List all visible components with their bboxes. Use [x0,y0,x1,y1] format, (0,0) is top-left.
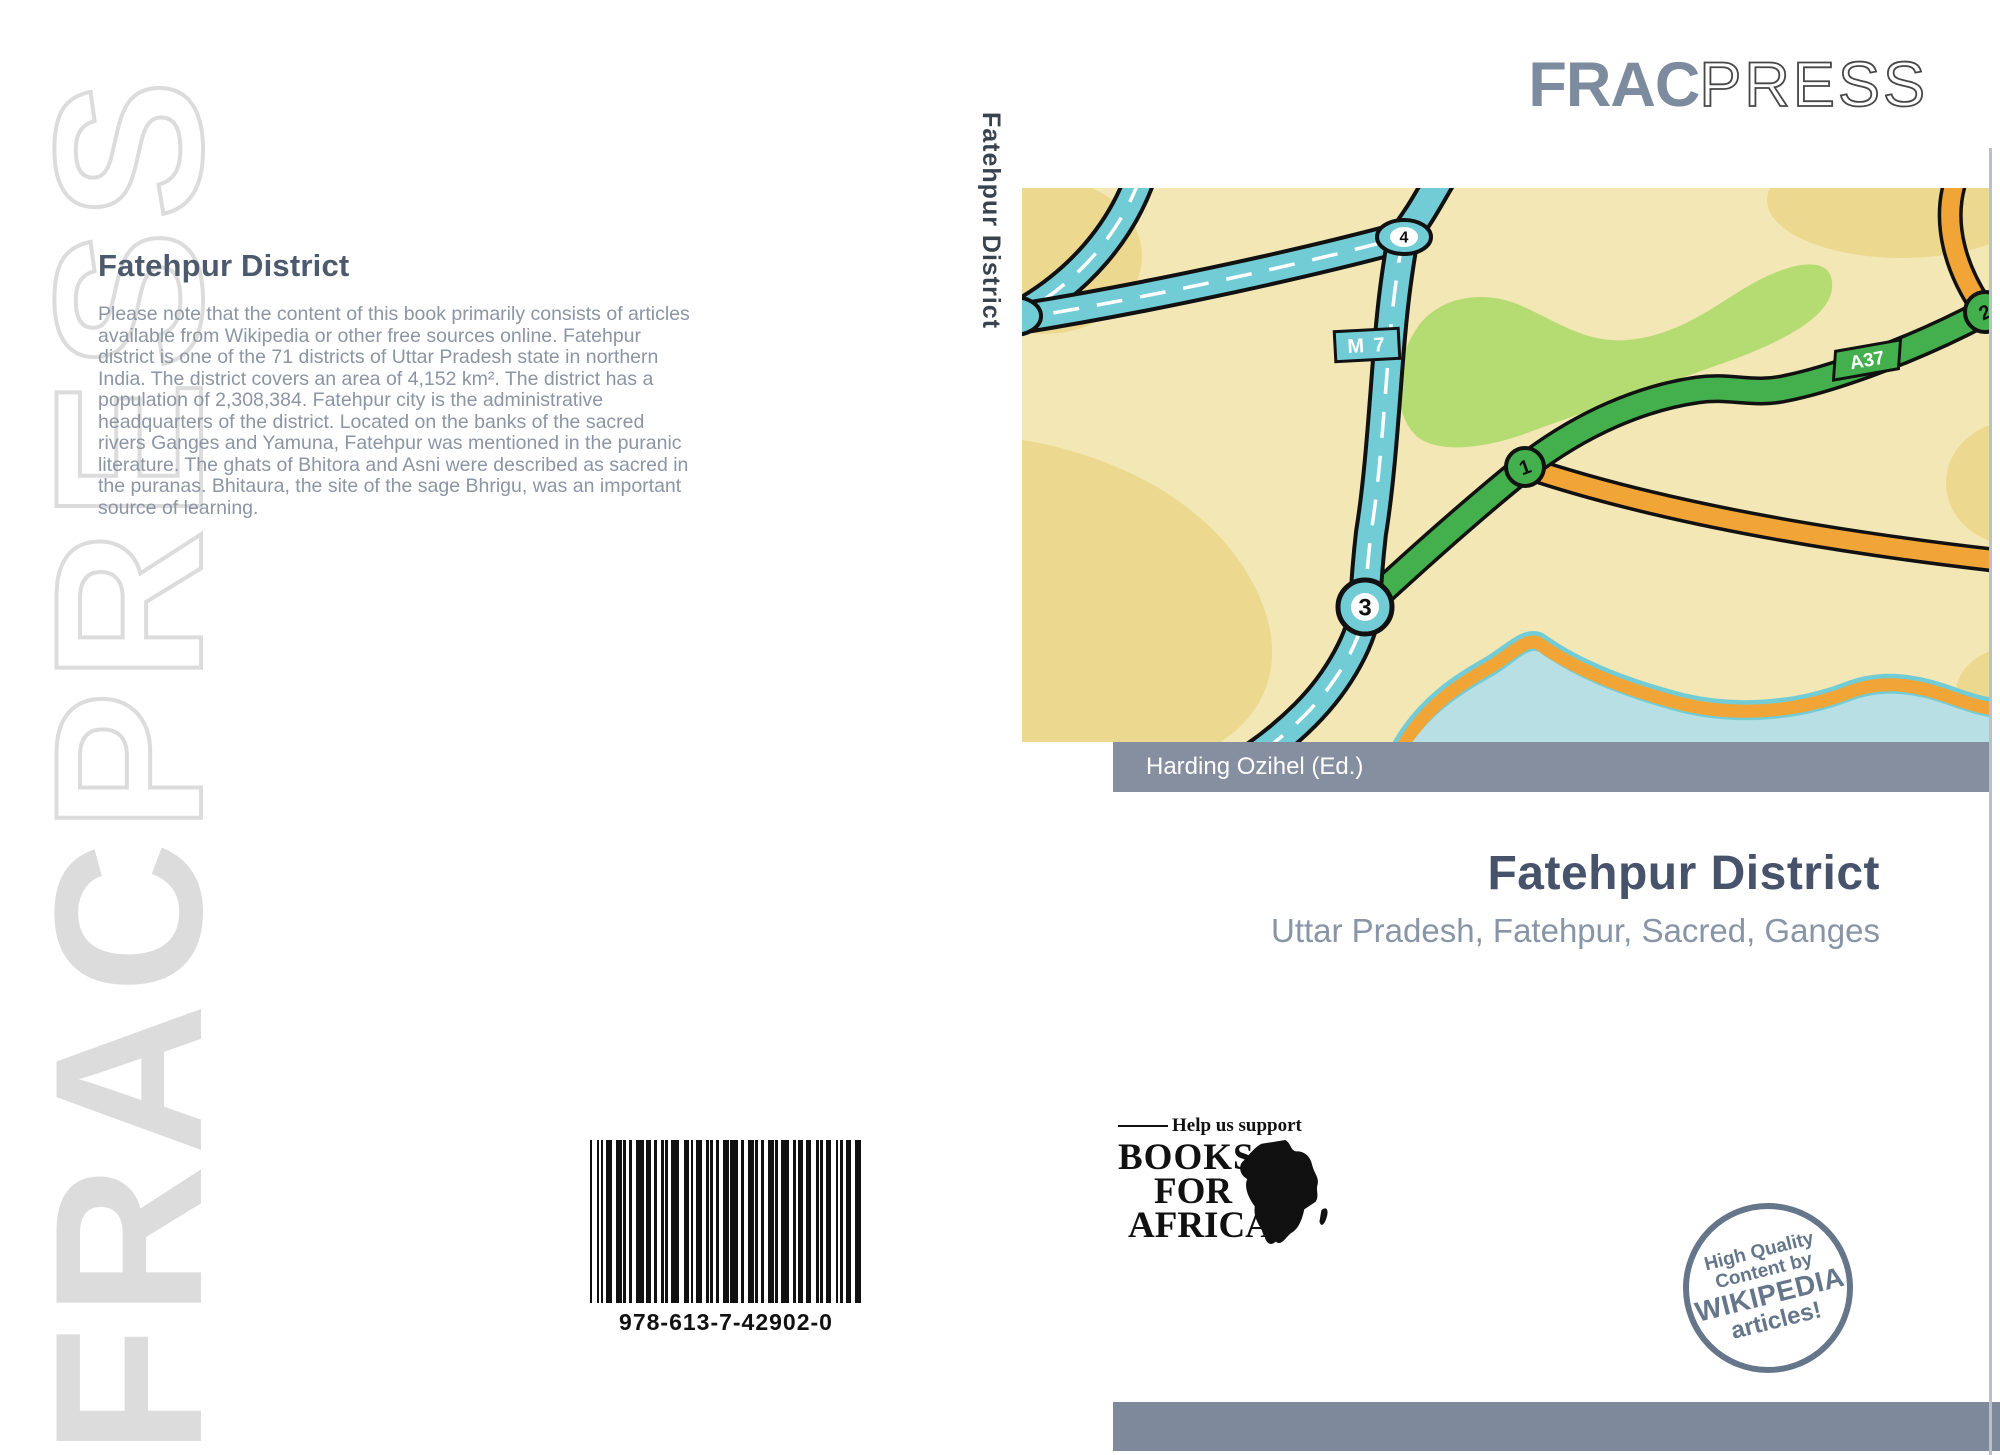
junction-4: 4 [1377,220,1431,254]
books-for-africa-logo: Help us support BOOKS FOR AFRICA [1118,1115,1318,1275]
bfa-word-books: BOOKS [1118,1141,1272,1175]
logo-frac: FRAC [1528,50,1699,120]
barcode-bars [590,1140,862,1303]
m7-label: M 7 [1334,328,1399,361]
bfa-word-africa: AFRICA [1118,1209,1272,1243]
watermark-frac: FRAC [11,832,246,1455]
front-subtitle: Uttar Pradesh, Fatehpur, Sacred, Ganges [1271,912,1880,950]
isbn-number: 978-613-7-42902-0 [590,1309,862,1336]
editor-bar: Harding Ozihel (Ed.) [1113,742,1992,792]
barcode: 978-613-7-42902-0 [590,1140,862,1336]
svg-text:4: 4 [1400,230,1409,247]
bfa-tagline-text: Help us support [1172,1115,1302,1136]
map-svg: M 7 A37 4 1 2 [1022,188,1990,742]
junction-2: 2 [1965,292,1990,332]
book-cover: FRACPRESS Fatehpur District Please note … [0,0,2000,1455]
junction-1: 1 [1506,448,1544,486]
svg-text:3: 3 [1358,595,1371,622]
front-title: Fatehpur District [1487,846,1880,901]
bottom-bar [1113,1402,2000,1451]
editor-name: Harding Ozihel (Ed.) [1146,753,1363,780]
publisher-watermark: FRACPRESS [6,0,261,1455]
bfa-tagline: Help us support [1118,1115,1318,1137]
back-cover-description: Please note that the content of this boo… [98,304,690,519]
svg-text:M 7: M 7 [1347,334,1387,358]
bfa-word-for: FOR [1118,1175,1272,1209]
junction-3: 3 [1338,580,1392,634]
spine-title: Fatehpur District [976,112,1005,329]
wikipedia-stamp: High Quality Content by WIKIPEDIA articl… [1683,1203,1853,1373]
logo-press: PRESS [1699,50,1928,120]
page-edge-line [1989,148,1992,1455]
publisher-logo: FRACPRESS [1528,54,1928,117]
bfa-rule [1118,1125,1168,1127]
bfa-wordmark: BOOKS FOR AFRICA [1118,1141,1272,1243]
map-illustration: M 7 A37 4 1 2 [1022,188,1990,742]
wikipedia-stamp-text: High Quality Content by WIKIPEDIA articl… [1683,1224,1853,1352]
back-cover-title: Fatehpur District [98,248,349,284]
